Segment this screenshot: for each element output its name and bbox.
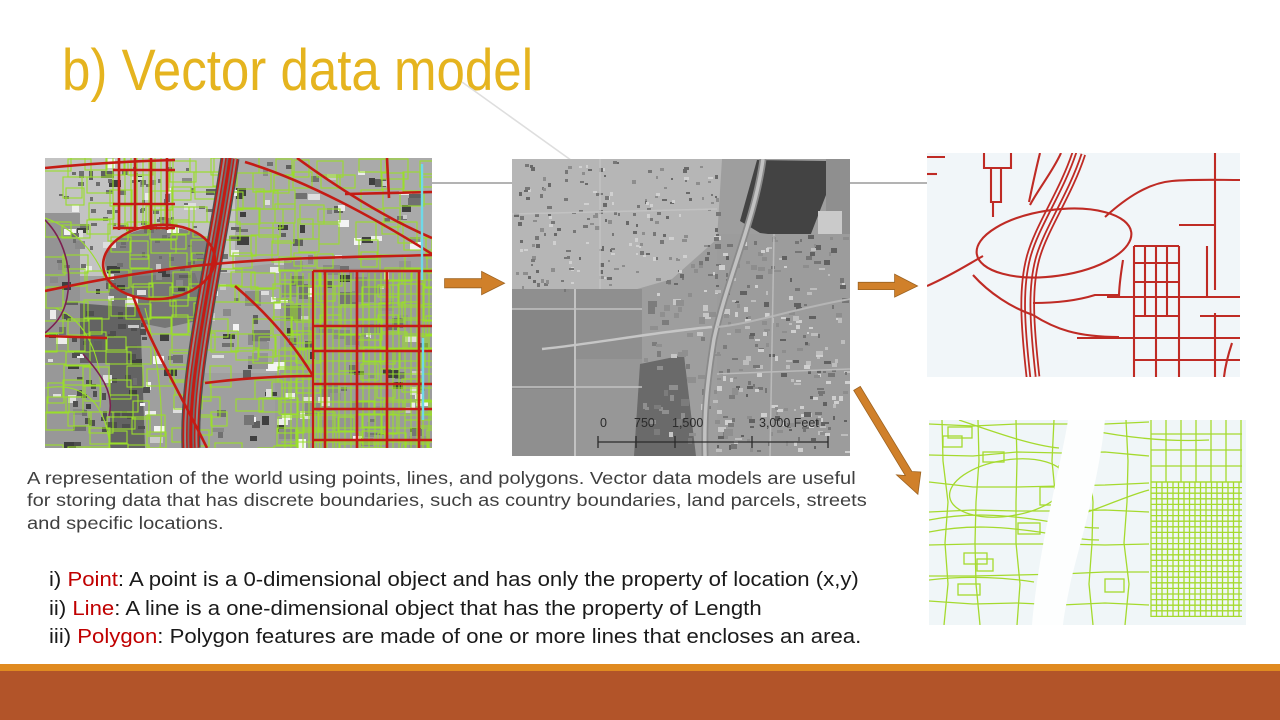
svg-text:3,000 Feet: 3,000 Feet — [759, 416, 819, 430]
svg-text:750: 750 — [634, 416, 655, 430]
svg-text:1,500: 1,500 — [672, 416, 703, 430]
svg-text:0: 0 — [600, 416, 607, 430]
